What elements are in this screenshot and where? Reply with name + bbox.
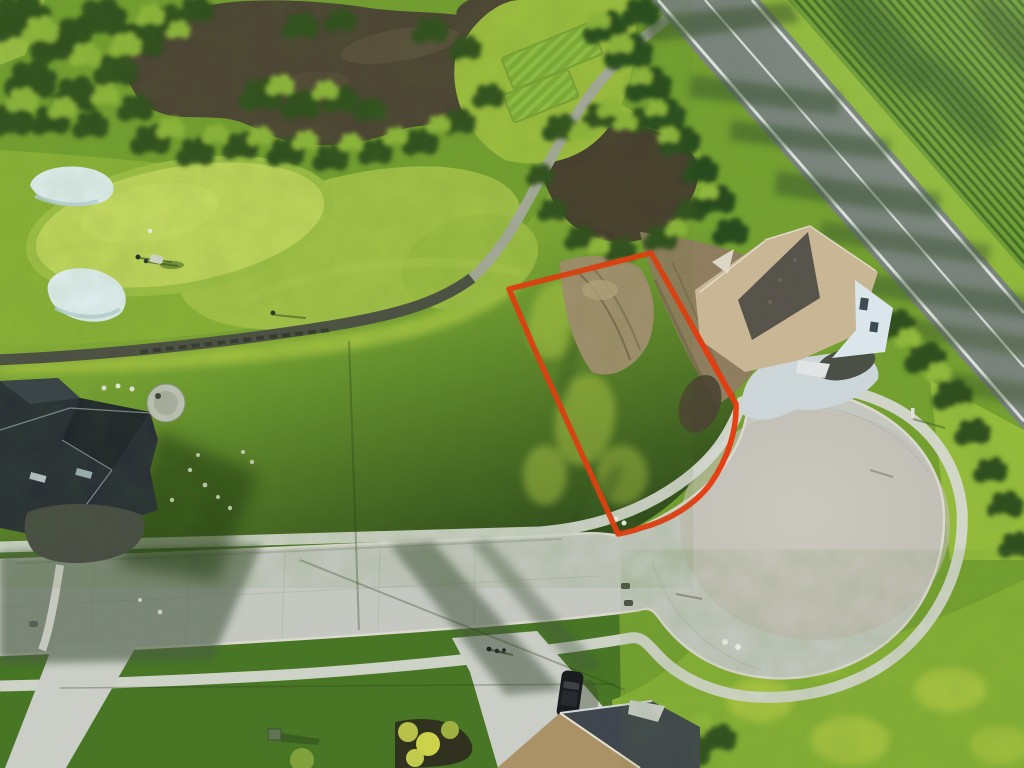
photo-grain bbox=[0, 0, 1024, 768]
aerial-photo bbox=[0, 0, 1024, 768]
